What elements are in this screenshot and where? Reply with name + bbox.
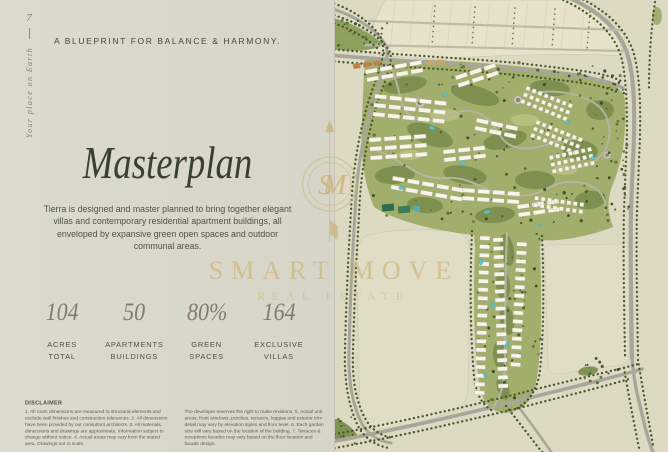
stat-apartments: 50 APARTMENTS BUILDINGS <box>98 299 170 362</box>
disclaimer-column-2: The developer reserves the right to make… <box>185 409 328 448</box>
stat-label: GREEN SPACES <box>171 339 243 362</box>
stat-value: 80% <box>175 299 239 327</box>
disclaimer: DISCLAIMER 1. All room dimensions are me… <box>25 400 327 448</box>
page-title: Masterplan <box>34 136 302 189</box>
stat-value: 164 <box>247 299 311 327</box>
masterplan-map-illustration <box>335 0 668 452</box>
disclaimer-column-1: 1. All room dimensions are measured to s… <box>25 409 168 448</box>
stat-villas: 164 EXCLUSIVE VILLAS <box>243 299 315 362</box>
disclaimer-title: DISCLAIMER <box>25 400 327 406</box>
section-kicker: A BLUEPRINT FOR BALANCE & HARMONY. <box>0 36 335 46</box>
stat-acres: 104 ACRES TOTAL <box>26 299 98 362</box>
page-gutter <box>334 0 335 452</box>
page-marker: 7 Your place on Earth <box>20 12 38 138</box>
stat-green-spaces: 80% GREEN SPACES <box>171 299 243 362</box>
masterplan-map <box>335 0 668 452</box>
stats-row: 104 ACRES TOTAL 50 APARTMENTS BUILDINGS … <box>26 299 315 362</box>
stat-value: 104 <box>30 299 94 327</box>
stat-label: EXCLUSIVE VILLAS <box>243 339 315 362</box>
stat-value: 50 <box>103 299 167 327</box>
intro-paragraph: Tierra is designed and master planned to… <box>38 203 298 253</box>
stat-label: APARTMENTS BUILDINGS <box>98 339 170 362</box>
side-tagline: Your place on Earth <box>25 47 34 138</box>
page-number: 7 <box>20 12 38 24</box>
stat-label: ACRES TOTAL <box>26 339 98 362</box>
info-panel: 7 Your place on Earth A BLUEPRINT FOR BA… <box>0 0 335 452</box>
